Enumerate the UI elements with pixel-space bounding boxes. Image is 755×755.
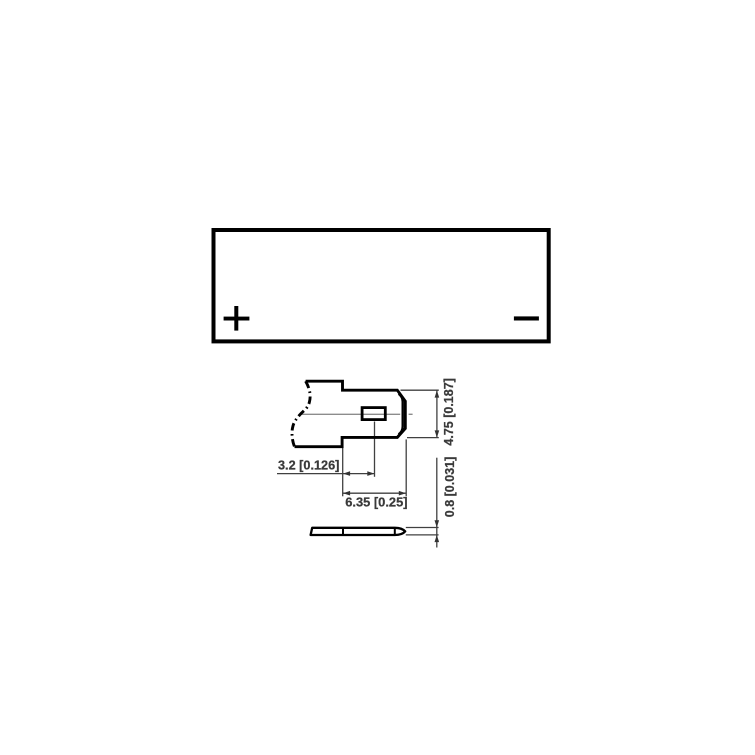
svg-text:0.8 [0.031]: 0.8 [0.031] (443, 457, 457, 517)
svg-text:6.35 [0.25]: 6.35 [0.25] (345, 494, 407, 509)
svg-text:3.2 [0.126]: 3.2 [0.126] (278, 458, 339, 472)
svg-text:4.75 [0.187]: 4.75 [0.187] (442, 378, 456, 445)
